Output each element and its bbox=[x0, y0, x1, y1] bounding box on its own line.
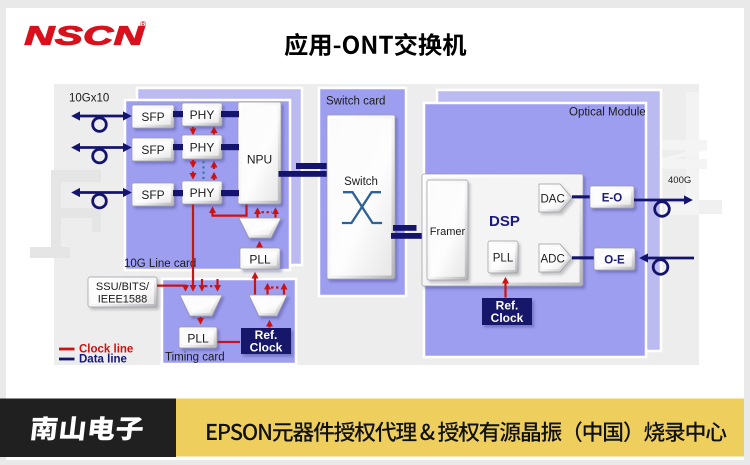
svg-text:Optical Module: Optical Module bbox=[569, 107, 646, 119]
svg-text:IEEE1588: IEEE1588 bbox=[98, 294, 148, 306]
svg-text:Clock: Clock bbox=[491, 311, 524, 325]
svg-text:PHY: PHY bbox=[190, 186, 215, 200]
svg-text:Clock: Clock bbox=[250, 341, 283, 355]
svg-text:Switch card: Switch card bbox=[326, 96, 385, 108]
svg-text:PHY: PHY bbox=[190, 141, 215, 155]
svg-text:NSCN: NSCN bbox=[25, 22, 145, 51]
svg-text:PLL: PLL bbox=[249, 253, 271, 267]
svg-text:SFP: SFP bbox=[141, 188, 164, 202]
svg-text:SFP: SFP bbox=[141, 143, 164, 157]
svg-text:Data line: Data line bbox=[79, 354, 127, 366]
svg-text:DSP: DSP bbox=[489, 213, 520, 230]
svg-text:SFP: SFP bbox=[141, 110, 164, 124]
svg-text:E-O: E-O bbox=[602, 193, 623, 205]
svg-text:®: ® bbox=[140, 19, 147, 29]
svg-text:PLL: PLL bbox=[493, 253, 514, 265]
svg-text:10Gx10: 10Gx10 bbox=[69, 93, 109, 105]
svg-text:Framer: Framer bbox=[430, 226, 466, 238]
svg-text:PHY: PHY bbox=[190, 108, 215, 122]
svg-text:400G: 400G bbox=[668, 175, 691, 186]
svg-text:PLL: PLL bbox=[187, 332, 209, 346]
svg-text:O-E: O-E bbox=[604, 255, 625, 267]
svg-text:Timing card: Timing card bbox=[165, 352, 225, 364]
svg-text:SSU/BITS/: SSU/BITS/ bbox=[96, 281, 150, 293]
svg-text:Switch: Switch bbox=[344, 176, 378, 188]
svg-text:10G Line card: 10G Line card bbox=[124, 258, 196, 270]
svg-text:ADC: ADC bbox=[541, 254, 565, 266]
svg-text:NPU: NPU bbox=[247, 153, 272, 167]
svg-text:DAC: DAC bbox=[541, 194, 565, 206]
